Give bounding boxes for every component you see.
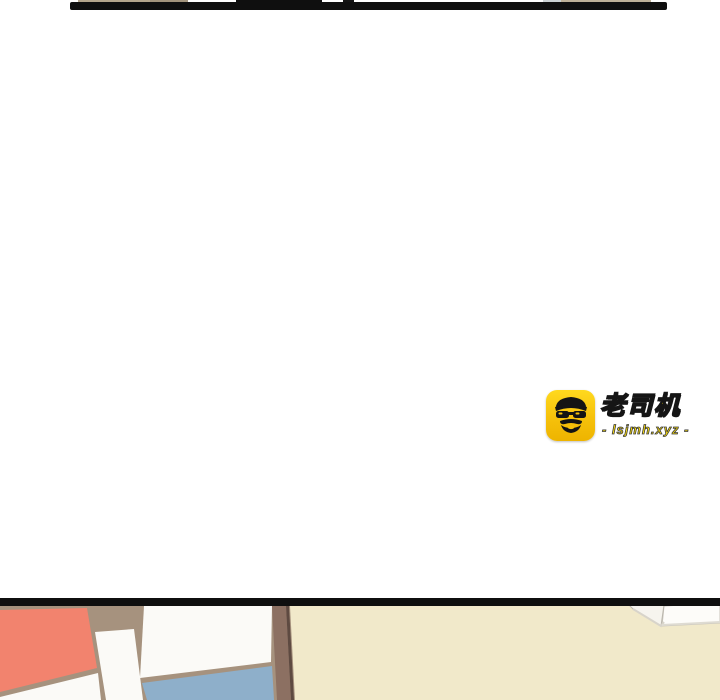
previous-panel-edge	[0, 0, 720, 14]
next-comic-panel	[0, 598, 720, 700]
panel-border-bar	[70, 2, 667, 10]
driver-avatar-icon	[546, 390, 595, 441]
comic-page: 老司机 - lsjmh.xyz -	[0, 0, 720, 700]
watermark-text-block: 老司机 - lsjmh.xyz -	[600, 394, 689, 436]
panel-border-bar	[236, 0, 322, 10]
panel-border-bar	[0, 598, 720, 606]
site-watermark: 老司机 - lsjmh.xyz -	[546, 386, 716, 444]
watermark-site-name: 老司机	[600, 394, 689, 419]
driver-avatar-glyph	[551, 394, 591, 436]
watermark-site-url: - lsjmh.xyz -	[600, 423, 689, 436]
panel-artwork	[0, 598, 720, 700]
